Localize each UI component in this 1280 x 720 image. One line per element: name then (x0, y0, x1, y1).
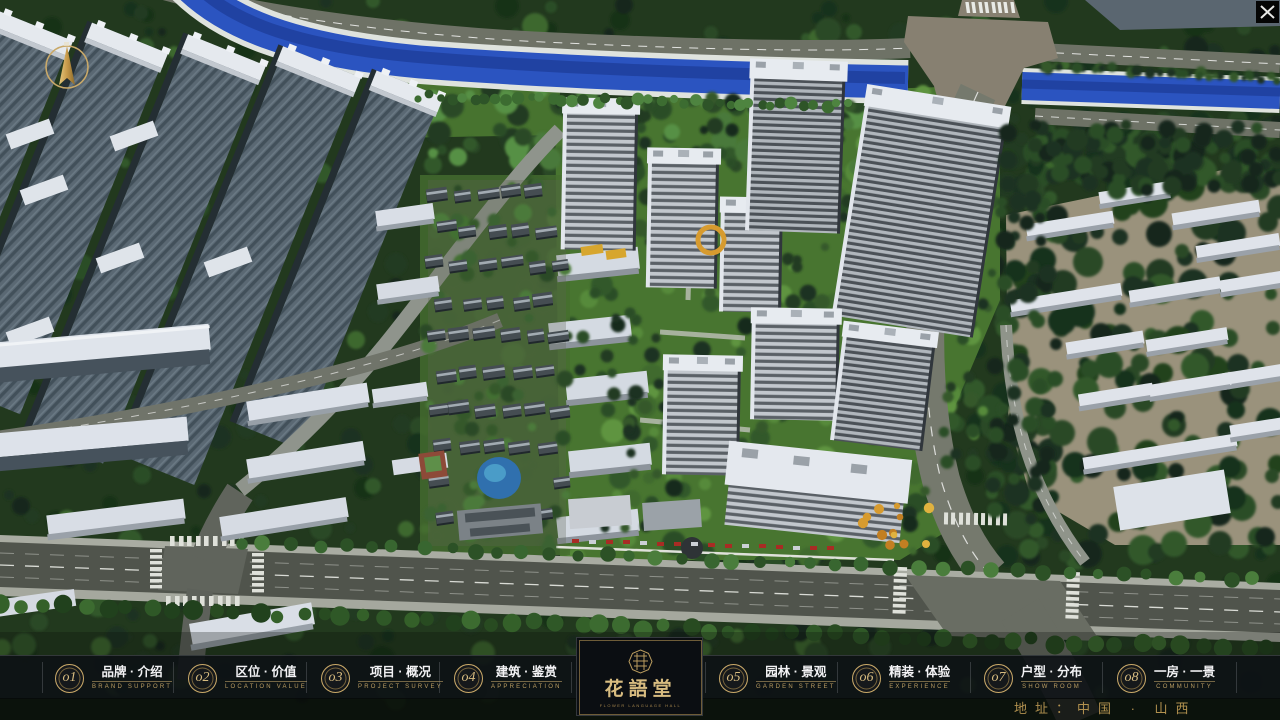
svg-text:FLOWER LANGUAGE HALL: FLOWER LANGUAGE HALL (600, 703, 682, 708)
svg-text:花語堂: 花語堂 (604, 677, 676, 700)
